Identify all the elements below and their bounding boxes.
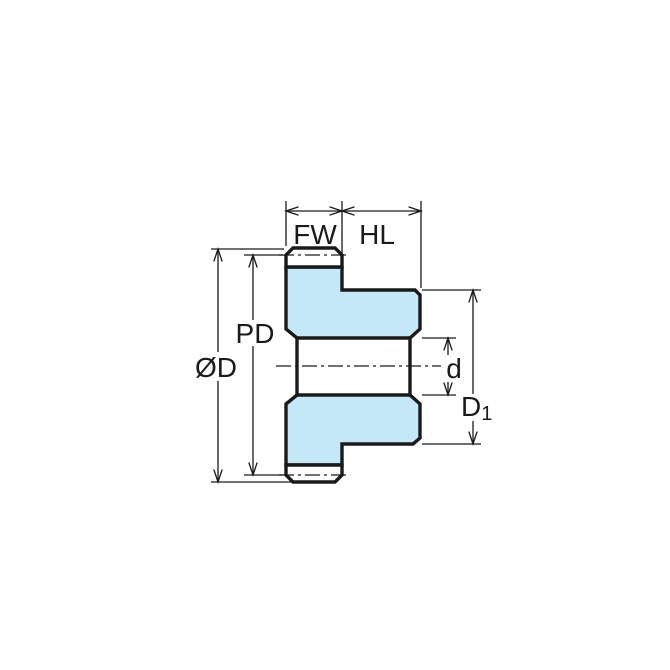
face-width-label: FW [293, 219, 337, 250]
outer-diameter-label: ØD [195, 352, 237, 383]
hub-diameter-label-main: D [461, 391, 481, 422]
bottom-tooth [286, 465, 342, 482]
gear-body-lower [286, 395, 420, 465]
top-tooth [286, 248, 342, 267]
pitch-diameter-label: PD [236, 318, 275, 349]
hub-diameter-label-subscript: 1 [481, 403, 492, 425]
bore-diameter-label: d [446, 353, 462, 384]
hub-length-label: HL [359, 219, 395, 250]
gear-dimension-drawing: FW HL ØD PD d D1 [0, 0, 670, 670]
gear-cross-section-svg: FW HL ØD PD d D1 [0, 0, 670, 670]
gear-body-upper [286, 267, 420, 338]
gear-part [286, 248, 420, 482]
